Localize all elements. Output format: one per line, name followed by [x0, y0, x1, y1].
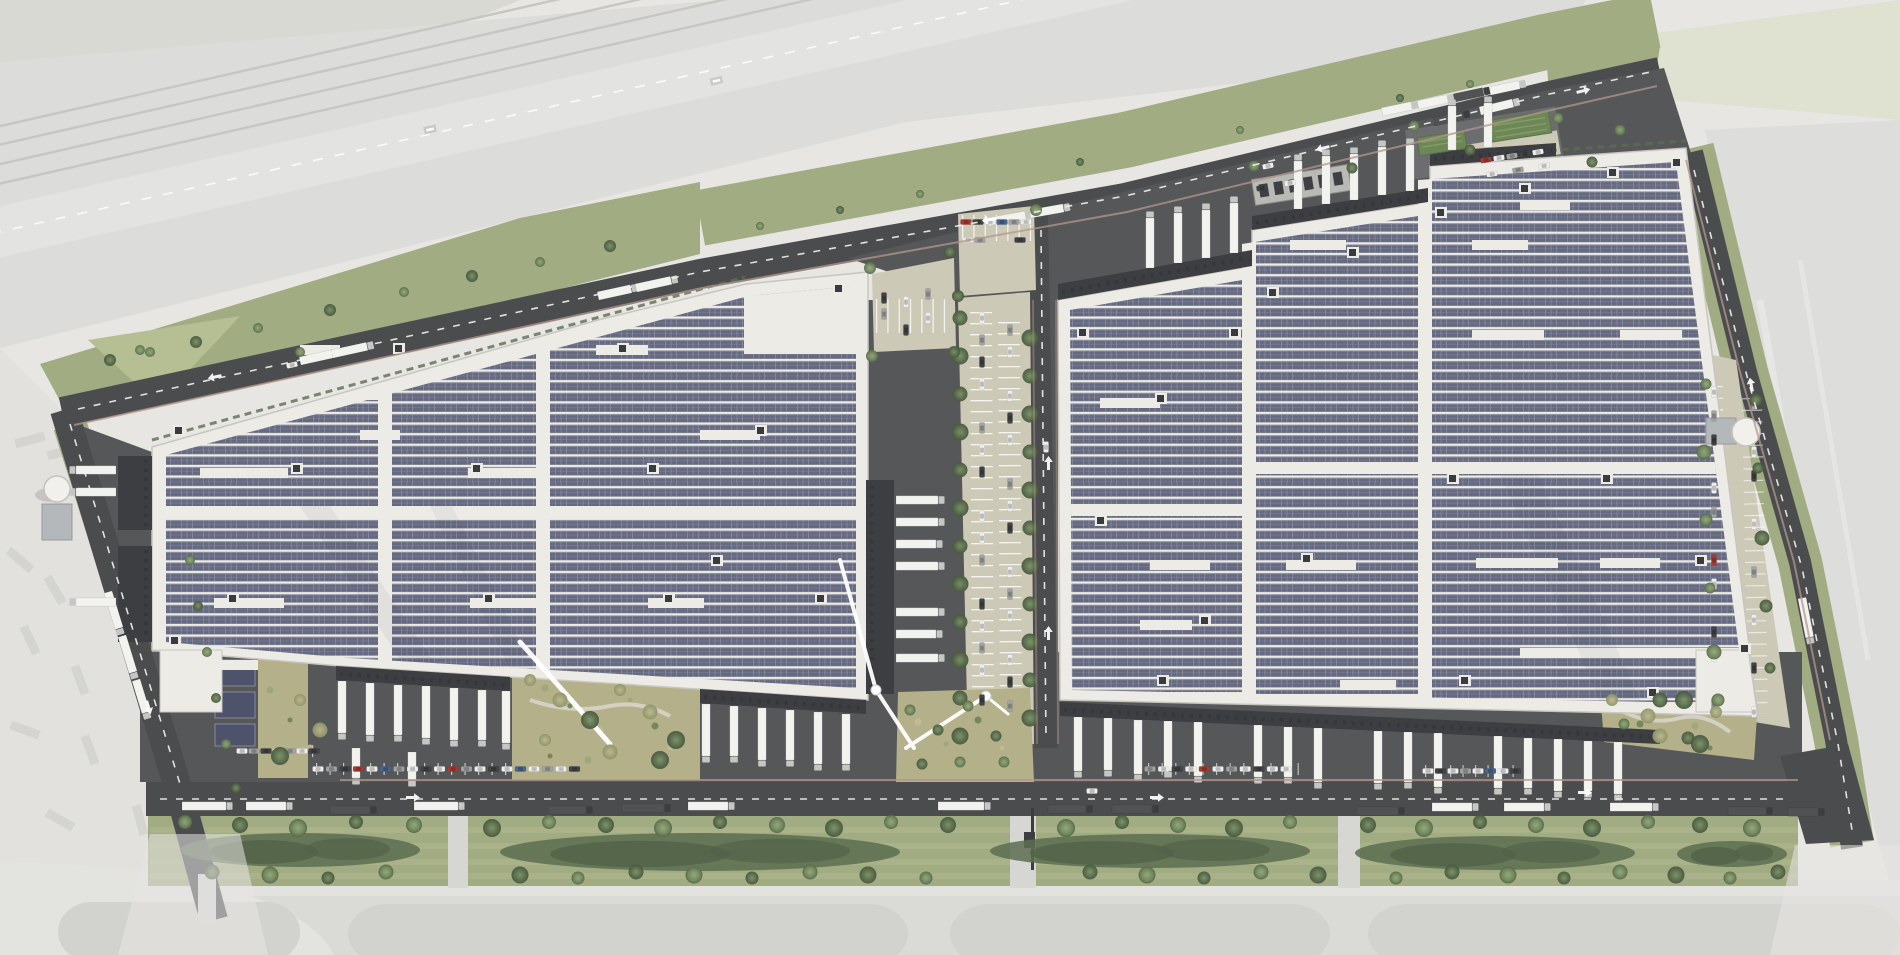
car — [1711, 435, 1716, 446]
truck — [1074, 717, 1082, 778]
truck — [1504, 803, 1551, 811]
truck — [896, 562, 945, 570]
truck — [1230, 197, 1238, 254]
hedge-blob — [306, 838, 390, 860]
tree — [1743, 819, 1761, 837]
car-roof — [559, 767, 564, 771]
truck-cab — [1153, 805, 1159, 813]
truck-trailer — [1174, 213, 1182, 263]
tree — [262, 867, 279, 884]
truck — [938, 802, 991, 810]
car-roof — [980, 316, 984, 321]
olive-tree — [553, 693, 568, 708]
roof-hatch — [229, 595, 236, 602]
truck — [688, 802, 735, 810]
roof-walkway — [1432, 462, 1746, 474]
tree — [185, 555, 195, 565]
truck-cab — [729, 802, 735, 810]
car-roof — [1438, 769, 1443, 773]
roof-skylight — [1286, 560, 1356, 570]
truck-trailer — [1074, 717, 1082, 771]
tree — [999, 757, 1010, 768]
car — [979, 599, 984, 610]
car — [1007, 611, 1012, 622]
car-roof — [532, 767, 537, 771]
roof-skylight — [1290, 240, 1346, 250]
truck-cab — [985, 802, 991, 810]
garden-speckle — [652, 723, 659, 730]
truck-cab — [1104, 771, 1112, 777]
tree — [1115, 815, 1129, 829]
tree — [1500, 867, 1517, 884]
car-roof — [1008, 704, 1012, 709]
tree — [952, 576, 969, 593]
roof-skylight — [1100, 398, 1160, 408]
car — [249, 748, 260, 753]
truck — [1728, 807, 1773, 815]
roof-hatch — [1201, 617, 1208, 624]
tree — [1283, 815, 1297, 829]
truck — [1494, 736, 1502, 795]
truck — [1202, 204, 1210, 259]
truck-trailer — [1104, 718, 1112, 770]
truck-trailer — [896, 608, 938, 616]
roof-skylight — [1150, 560, 1210, 570]
truck — [70, 488, 117, 496]
truck — [1432, 803, 1479, 811]
car-roof — [1752, 522, 1756, 527]
car — [1423, 768, 1434, 773]
car — [421, 766, 432, 771]
tree — [1587, 157, 1598, 168]
tree — [1236, 126, 1244, 134]
truck-trailer — [548, 806, 586, 814]
truck — [70, 466, 117, 474]
tree — [1170, 817, 1186, 833]
tree — [866, 350, 878, 362]
tree — [1023, 673, 1038, 688]
car-roof — [1090, 789, 1095, 793]
truck-cab — [338, 734, 346, 740]
tree — [1022, 330, 1039, 347]
truck-cab — [1294, 155, 1302, 161]
tree — [713, 815, 727, 829]
truck-trailer — [352, 748, 360, 778]
car-roof — [1426, 769, 1431, 773]
truck — [1584, 741, 1592, 798]
truck-cab — [702, 757, 710, 763]
garden-speckle — [288, 718, 293, 723]
tree — [1553, 113, 1564, 124]
warehouse-west-annex — [160, 650, 222, 712]
tree — [1615, 125, 1626, 136]
truck-trailer — [1350, 154, 1358, 200]
tree — [905, 705, 916, 716]
roof-hatch — [1079, 329, 1086, 336]
car-roof — [1229, 767, 1234, 771]
car-roof — [1476, 769, 1481, 773]
tree — [145, 347, 155, 357]
tree — [746, 872, 759, 885]
olive-tree — [1653, 729, 1668, 744]
tree — [289, 819, 307, 837]
car-roof — [882, 312, 886, 317]
truck-trailer — [1434, 733, 1442, 787]
car — [979, 555, 984, 566]
tree — [349, 815, 363, 829]
car — [1199, 766, 1210, 771]
olive-tree — [294, 694, 306, 706]
car — [461, 766, 472, 771]
visitor-lot-a — [872, 258, 956, 352]
car-roof — [1712, 414, 1716, 419]
car — [979, 379, 984, 390]
car — [367, 766, 378, 771]
truck-cab — [1524, 789, 1532, 795]
truck — [246, 802, 293, 810]
tree — [953, 539, 968, 554]
truck-trailer — [1048, 805, 1086, 813]
hedge-blob — [1030, 841, 1174, 865]
tree — [940, 817, 956, 833]
hedge-blob — [1735, 845, 1774, 862]
truck-trailer — [502, 691, 510, 743]
truck-trailer — [1554, 739, 1562, 791]
car-roof — [1018, 238, 1023, 242]
car — [434, 766, 445, 771]
car-roof — [904, 328, 908, 333]
tree — [1558, 872, 1571, 885]
car — [1510, 768, 1521, 773]
car — [261, 748, 272, 753]
warehouse-east-annex — [1696, 650, 1757, 712]
roof-hatch — [1157, 395, 1164, 402]
truck-cab — [939, 518, 945, 526]
car-roof — [904, 300, 908, 305]
car — [903, 325, 908, 336]
truck — [1194, 722, 1202, 783]
car — [1267, 766, 1278, 771]
car — [1009, 219, 1020, 224]
car-roof — [316, 767, 321, 771]
car-roof — [980, 382, 984, 387]
car-roof — [1024, 220, 1029, 224]
car — [1007, 567, 1012, 578]
roof-hatch — [649, 465, 656, 472]
roof-hatch — [1437, 209, 1444, 216]
tree — [466, 270, 478, 282]
tree — [1707, 645, 1722, 660]
truck-trailer — [182, 802, 226, 810]
truck-trailer — [1314, 728, 1322, 782]
tree — [1619, 719, 1630, 730]
car — [1007, 589, 1012, 600]
truck-cab — [70, 466, 76, 474]
car-roof — [1501, 769, 1506, 773]
car — [997, 219, 1008, 224]
car — [515, 766, 526, 771]
tree — [654, 819, 672, 837]
roof-hatch — [1303, 555, 1310, 562]
tree — [884, 815, 898, 829]
truck-trailer — [1134, 720, 1142, 774]
sprinkler-tank-east — [1732, 418, 1760, 446]
car-roof — [980, 536, 984, 541]
tree — [952, 652, 969, 669]
car — [925, 313, 930, 324]
tree — [1641, 815, 1655, 829]
truck — [1146, 212, 1154, 269]
car-roof — [1008, 658, 1012, 663]
tree — [952, 728, 969, 745]
tree — [1613, 865, 1628, 880]
car-roof — [980, 646, 984, 651]
truck — [758, 708, 766, 767]
tree — [1653, 693, 1668, 708]
car — [1043, 442, 1048, 453]
tree — [322, 872, 335, 885]
pump-house-west — [42, 504, 72, 540]
car-roof — [1509, 154, 1515, 159]
car — [1711, 507, 1716, 518]
truck-cab — [587, 806, 593, 814]
truck-cab — [1314, 783, 1322, 789]
roof-hatch — [1269, 289, 1276, 296]
tree — [512, 867, 529, 884]
tree — [598, 817, 614, 833]
car-roof — [964, 220, 969, 224]
tree — [399, 287, 409, 297]
car-roof — [1008, 570, 1012, 575]
tree — [1023, 369, 1038, 384]
roof-hatch — [1349, 249, 1356, 256]
tree — [535, 257, 545, 267]
tree — [1030, 204, 1042, 216]
roof-hatch — [1741, 645, 1748, 652]
tree — [1465, 145, 1476, 156]
tree — [953, 387, 968, 402]
truck-cab — [1174, 207, 1182, 213]
aerial-render-stage — [0, 0, 1900, 955]
car — [979, 445, 984, 456]
tree — [629, 865, 644, 880]
garden-speckle — [267, 687, 274, 694]
truck — [330, 806, 377, 814]
car-roof — [1008, 350, 1012, 355]
car-roof — [1008, 680, 1012, 685]
car-roof — [478, 767, 483, 771]
tree — [1225, 819, 1243, 837]
tree — [1755, 531, 1770, 546]
car — [1460, 768, 1471, 773]
olive-tree — [1675, 691, 1693, 709]
car — [1751, 447, 1756, 458]
car-roof — [410, 767, 415, 771]
car-roof — [1008, 416, 1012, 421]
tree — [1760, 600, 1773, 613]
truck — [1434, 733, 1442, 794]
truck-cab — [1554, 792, 1562, 798]
garden-speckle — [915, 719, 922, 726]
truck — [548, 806, 593, 814]
tree — [952, 424, 969, 441]
roof-hatch — [395, 345, 402, 352]
truck — [1254, 725, 1262, 784]
tree — [1347, 163, 1358, 174]
truck-cab — [459, 802, 465, 810]
truck — [478, 690, 486, 747]
hedge-blob — [550, 841, 730, 868]
car — [979, 423, 984, 434]
carport-panel — [215, 724, 255, 746]
faded-car — [425, 126, 436, 133]
tree — [944, 246, 956, 258]
car-roof — [1008, 614, 1012, 619]
truck-cab — [1399, 807, 1405, 815]
car-roof — [451, 767, 456, 771]
truck-cab — [394, 736, 402, 742]
truck — [1484, 97, 1492, 148]
truck-cab — [1653, 803, 1659, 811]
truck-cab — [366, 736, 374, 742]
hedge-blob — [1502, 841, 1600, 863]
truck-cab — [1146, 212, 1154, 218]
tree — [1445, 865, 1460, 880]
car-roof — [383, 767, 388, 771]
tree — [952, 500, 969, 517]
solar-column — [1256, 216, 1418, 694]
car — [1021, 219, 1032, 224]
tree — [193, 601, 203, 611]
olive-tree — [643, 705, 658, 720]
roof-hatch — [1449, 475, 1456, 482]
truck-cab — [1087, 805, 1093, 813]
car-roof — [882, 296, 886, 301]
car-roof — [1535, 150, 1541, 155]
truck — [394, 685, 402, 742]
hedge-blob — [710, 839, 850, 864]
tree — [1076, 158, 1084, 166]
car-roof — [464, 767, 469, 771]
tree — [860, 867, 877, 884]
car — [1751, 567, 1756, 578]
truck-cab — [937, 540, 943, 548]
truck-cab — [1350, 148, 1358, 154]
car — [340, 766, 351, 771]
truck — [622, 804, 671, 812]
car-roof — [1522, 152, 1528, 157]
tree — [1753, 463, 1764, 474]
car — [1015, 237, 1026, 242]
olive-tree — [313, 723, 328, 738]
roof-skylight — [1472, 330, 1544, 340]
tree — [825, 819, 843, 837]
car-roof — [980, 624, 984, 629]
truck-cab — [287, 802, 293, 810]
tree — [1750, 394, 1763, 407]
truck — [1356, 807, 1405, 815]
car-roof — [1008, 526, 1012, 531]
tree — [379, 865, 394, 880]
truck-trailer — [76, 488, 116, 496]
roof-hatch — [665, 595, 672, 602]
truck-trailer — [1610, 803, 1652, 811]
roof-walkway — [1242, 216, 1256, 694]
truck-trailer — [730, 706, 738, 756]
truck-trailer — [688, 802, 728, 810]
roof-skylight — [1476, 558, 1558, 568]
roof-hatch — [1673, 159, 1680, 166]
tree — [1083, 865, 1098, 880]
roof-skylight — [700, 430, 760, 440]
tree — [756, 222, 764, 230]
tree — [1390, 872, 1403, 885]
truck-cab — [1767, 807, 1773, 815]
car-roof — [980, 360, 984, 365]
roof-skylight — [200, 468, 288, 478]
car-roof — [264, 749, 269, 753]
truck-trailer — [1112, 805, 1152, 813]
car — [1240, 766, 1251, 771]
truck-cab — [1484, 97, 1492, 103]
faded-car — [711, 77, 722, 84]
car — [903, 297, 908, 308]
tree — [190, 336, 202, 348]
tree — [253, 323, 263, 333]
car — [979, 511, 984, 522]
car — [1007, 413, 1012, 424]
car — [448, 766, 459, 771]
truck-trailer — [1584, 741, 1592, 791]
truck-trailer — [76, 598, 116, 606]
car — [1185, 766, 1196, 771]
truck-trailer — [896, 562, 938, 570]
car — [1007, 479, 1012, 490]
car-roof — [545, 767, 550, 771]
car-roof — [980, 558, 984, 563]
tree — [1139, 867, 1156, 884]
sprinkler-tank-west — [44, 476, 70, 502]
truck — [814, 712, 822, 771]
truck-trailer — [422, 686, 430, 738]
car-roof — [1712, 438, 1716, 443]
truck-cab — [939, 654, 945, 662]
car — [394, 766, 405, 771]
tree — [1700, 514, 1713, 527]
car-roof — [1188, 767, 1193, 771]
car — [542, 766, 553, 771]
tree — [955, 757, 966, 768]
tree — [1057, 819, 1075, 837]
truck-cab — [1322, 150, 1330, 156]
car — [1226, 766, 1237, 771]
tree — [1022, 482, 1039, 499]
truck-trailer — [1406, 145, 1414, 191]
tree — [991, 731, 1002, 742]
car — [1007, 701, 1012, 712]
car-roof — [1488, 769, 1493, 773]
truck — [896, 518, 945, 526]
truck — [896, 496, 945, 504]
tree — [231, 783, 241, 793]
roof-skylight — [648, 598, 704, 608]
truck — [1610, 803, 1659, 811]
tree — [686, 867, 703, 884]
tree — [963, 701, 974, 712]
olive-tree — [1641, 709, 1656, 724]
truck — [1048, 805, 1093, 813]
truck-cab — [842, 765, 850, 771]
